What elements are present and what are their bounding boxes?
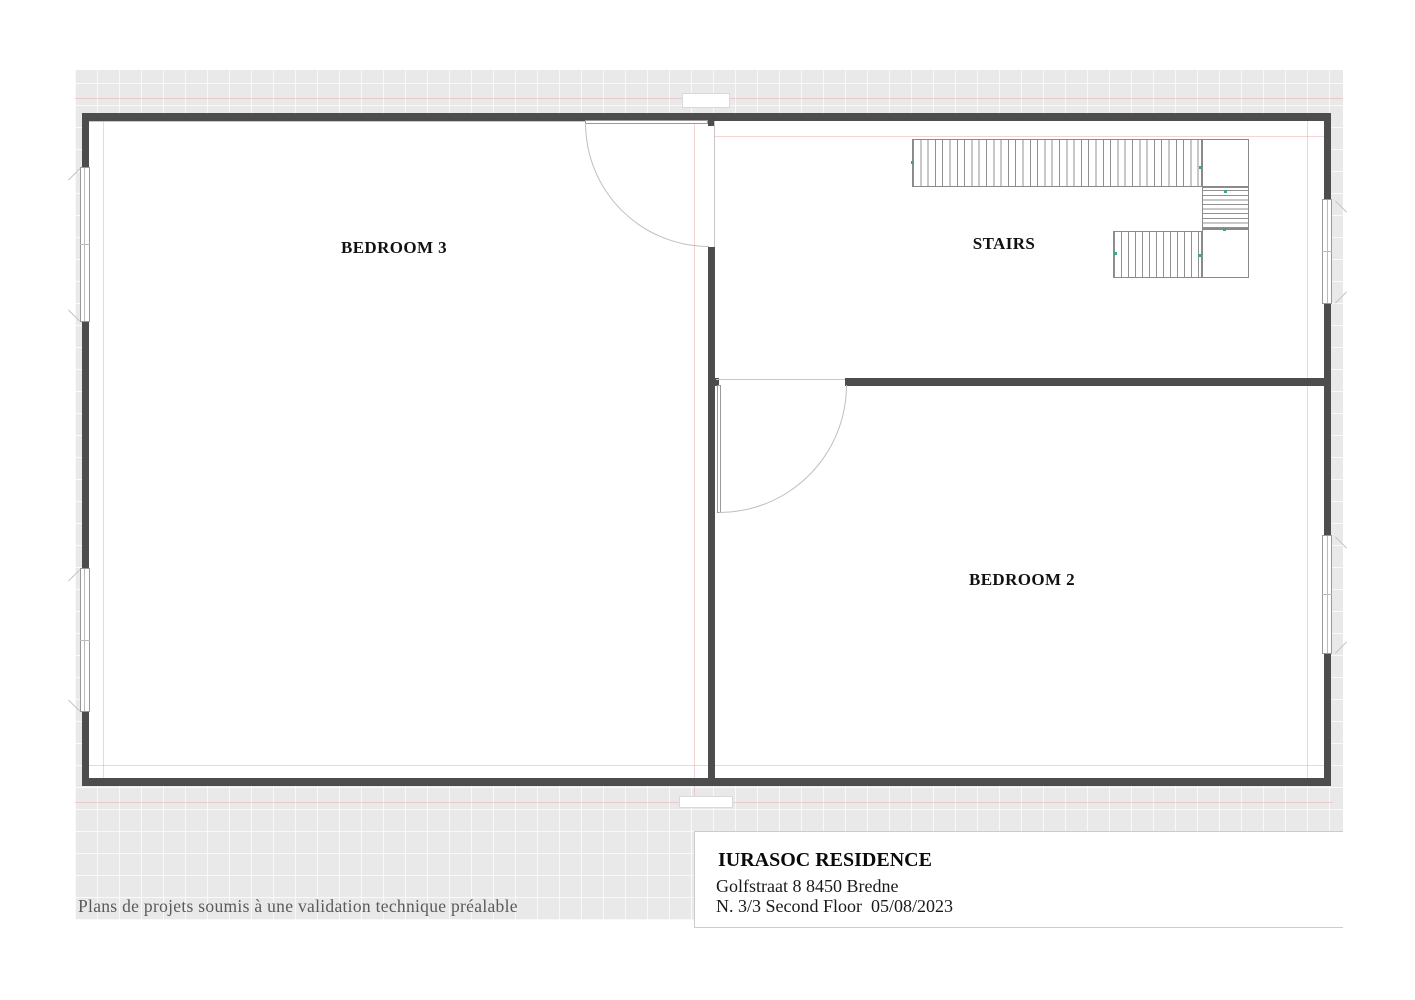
stairs-direction-tick bbox=[1224, 190, 1227, 193]
stairs-direction-tick bbox=[1114, 252, 1117, 255]
window-right-1-midline bbox=[1322, 251, 1332, 252]
validation-footnote: Plans de projets soumis à une validation… bbox=[78, 896, 518, 917]
wall-left-upper bbox=[82, 113, 89, 167]
door-jamb-line-bedroom3 bbox=[714, 121, 715, 247]
wall-right-lower bbox=[1324, 654, 1331, 786]
door-threshold-line-bedroom2 bbox=[716, 379, 845, 380]
title-block-project-name: IURASOC RESIDENCE bbox=[718, 849, 932, 872]
stairs-flight-upper bbox=[912, 139, 1202, 187]
wall-right-upper bbox=[1324, 113, 1331, 199]
guide-line-horizontal-stairs bbox=[715, 136, 1325, 137]
stairs-direction-tick bbox=[911, 161, 914, 164]
wall-interior-vertical bbox=[708, 247, 715, 778]
window-right-2-midline bbox=[1322, 594, 1332, 595]
wall-inner-edge-line bbox=[89, 121, 585, 122]
wall-interior-horizontal bbox=[845, 378, 1324, 386]
guide-line-vertical-left bbox=[103, 121, 104, 778]
room-label-bedroom2: BEDROOM 2 bbox=[942, 570, 1102, 590]
stairs-direction-tick bbox=[1223, 228, 1226, 231]
wall-left-middle bbox=[82, 322, 89, 568]
section-marker-bottom bbox=[679, 796, 733, 808]
wall-left-lower bbox=[82, 712, 89, 786]
title-block-address: Golfstraat 8 8450 Bredne bbox=[716, 876, 898, 897]
stairs-direction-tick bbox=[1199, 166, 1202, 169]
room-label-bedroom3: BEDROOM 3 bbox=[314, 238, 474, 258]
stairs-landing-upper bbox=[1202, 139, 1249, 187]
title-block-floor-and-date: N. 3/3 Second Floor 05/08/2023 bbox=[716, 896, 953, 917]
room-label-stairs: STAIRS bbox=[944, 234, 1064, 254]
window-left-2-midline bbox=[80, 640, 90, 641]
stairs-flight-connector bbox=[1202, 187, 1249, 229]
wall-right-middle bbox=[1324, 304, 1331, 535]
stairs-landing-lower bbox=[1202, 229, 1249, 278]
stairs-direction-tick bbox=[1198, 254, 1201, 257]
section-marker-top bbox=[682, 93, 730, 108]
stairs-flight-lower bbox=[1113, 231, 1202, 278]
guide-line-vertical-right bbox=[1307, 121, 1308, 778]
wall-bottom bbox=[82, 778, 1331, 786]
window-left-1-midline bbox=[80, 244, 90, 245]
